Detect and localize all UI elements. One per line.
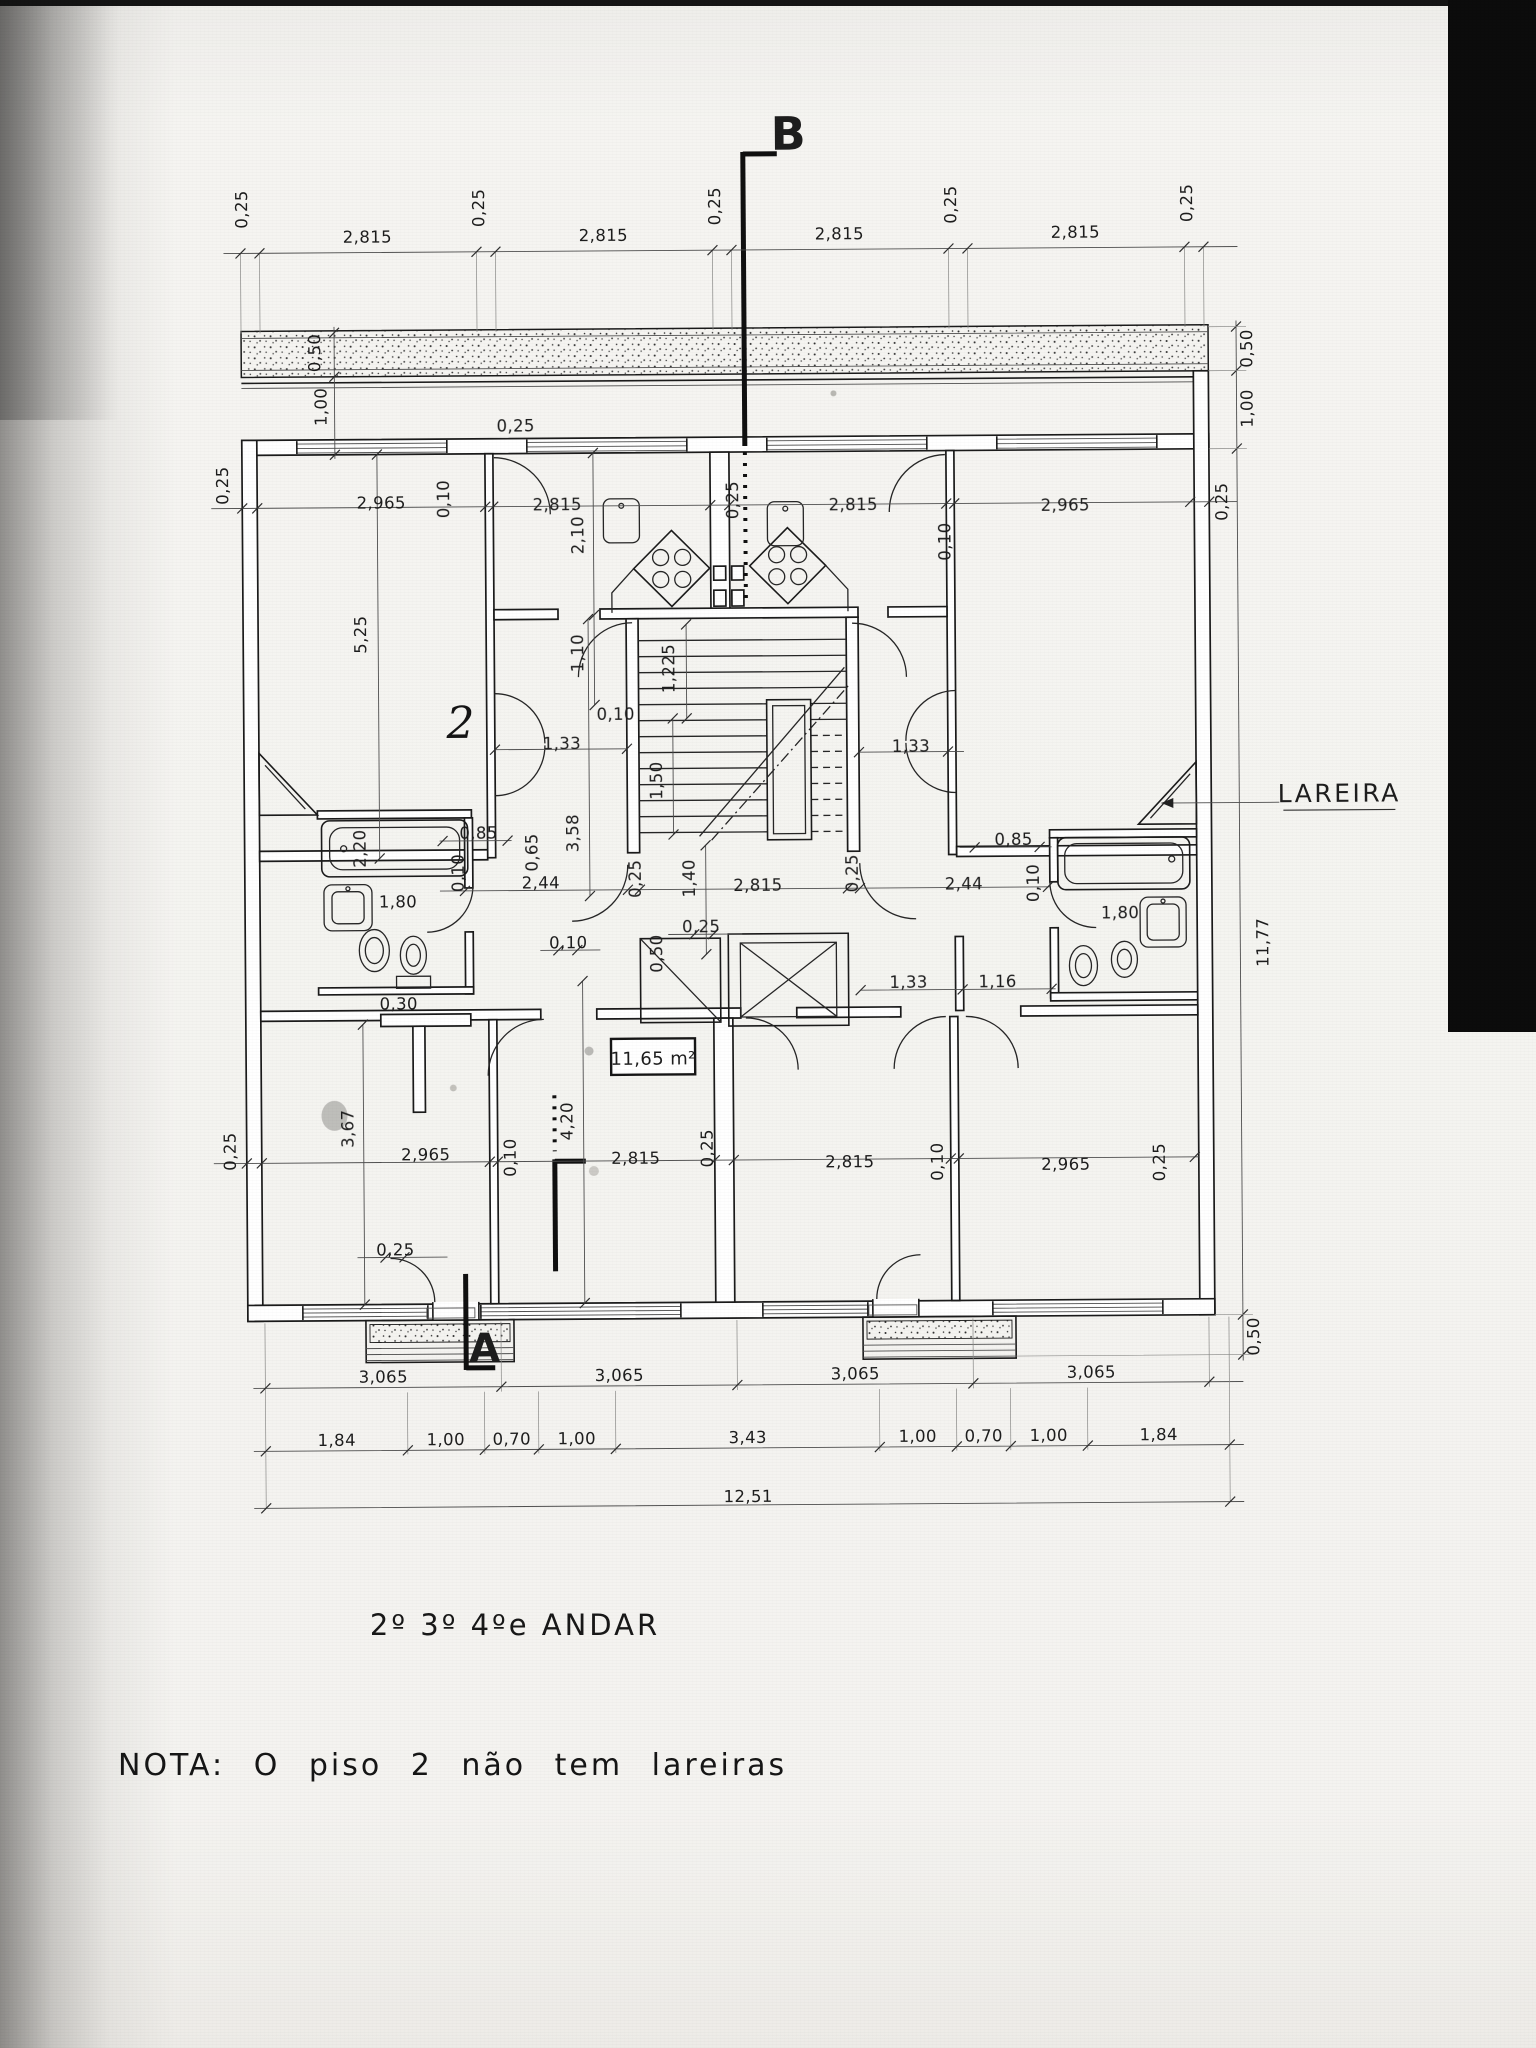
dimension-label: 0,25 (705, 187, 724, 225)
dimension-label: 1,16 (978, 972, 1016, 991)
dimension-label: 0,25 (941, 185, 960, 223)
floorplan-drawing: 0,252,8150,252,8150,252,8150,252,8150,25… (0, 0, 1536, 2048)
dimension-label: 0,50 (1237, 329, 1256, 367)
dimension-label: 2,815 (733, 876, 782, 895)
drawing-title: 2º 3º 4ºe ANDAR (330, 1608, 700, 1642)
dimension-label: 2,815 (343, 227, 392, 246)
section-marker-b: B (770, 107, 806, 161)
dimension-label: 0,85 (459, 824, 497, 843)
dimension-label: 0,10 (449, 854, 468, 892)
dimension-label: 0,25 (213, 466, 232, 504)
scanned-floorplan-page: { "page": { "paper_color": "#f4f3f0", "i… (0, 0, 1536, 2048)
dimension-label: 3,065 (1067, 1362, 1116, 1381)
dimension-label: 2,815 (829, 495, 878, 514)
dimension-label: 2,10 (568, 516, 587, 554)
dimension-label: 2,44 (945, 874, 983, 893)
dimension-label: 2,965 (401, 1145, 450, 1164)
dimension-label: 2,44 (522, 873, 560, 892)
dimension-label: 0,10 (596, 705, 634, 724)
dimension-label: 0,25 (626, 859, 645, 897)
dimension-label: 0,50 (647, 934, 666, 972)
dimension-label: 0,10 (928, 1142, 947, 1180)
dimension-label: 0,25 (1212, 482, 1231, 520)
dimension-label: 2,815 (815, 224, 864, 243)
dimension-label: 0,10 (1024, 864, 1043, 902)
dimension-label: 1,80 (1101, 903, 1139, 922)
dimension-label: 1,10 (568, 634, 587, 672)
dimension-label: 0,25 (698, 1129, 717, 1167)
dimension-label: 0,25 (1177, 184, 1196, 222)
dimension-label: 1,00 (1237, 389, 1256, 427)
section-line-b (743, 152, 780, 606)
top-terrace-band (241, 325, 1208, 389)
dimension-label: 0,50 (1244, 1317, 1263, 1355)
dimension-label: 0,85 (994, 830, 1032, 849)
drawing-note: NOTA: O piso 2 não tem lareiras (118, 1748, 787, 1783)
dimension-label: 3,065 (595, 1366, 644, 1385)
dimension-label: 1,225 (659, 644, 678, 693)
handwritten-mark: 2 (445, 698, 475, 749)
dimension-label: 1,00 (558, 1429, 596, 1448)
dimension-lines (207, 241, 1254, 1513)
dimension-label: 2,965 (1041, 1155, 1090, 1174)
dimension-label: 5,25 (351, 615, 370, 653)
dimension-label: 4,20 (557, 1102, 576, 1140)
elevator-shaft (728, 933, 849, 1026)
dimension-label: 2,815 (1051, 222, 1100, 241)
dimension-label: 0,25 (723, 481, 742, 519)
dimension-label: 3,58 (563, 814, 582, 852)
dimension-label: 0,25 (469, 189, 488, 227)
dimension-label: 1,84 (1140, 1425, 1178, 1444)
dimension-label: 3,065 (359, 1367, 408, 1386)
dimension-label: 1,50 (647, 761, 666, 799)
dimension-label: 1,80 (379, 892, 417, 911)
dimension-label: 0,25 (376, 1240, 414, 1259)
dimension-label: 0,65 (523, 833, 542, 871)
dimension-label: 2,20 (350, 829, 369, 867)
dimension-label: 0,10 (549, 933, 587, 952)
dimension-label: 1,33 (892, 737, 930, 756)
dimension-label: 11,77 (1253, 918, 1272, 967)
dimension-label: 0,25 (843, 854, 862, 892)
dimension-label: 1,33 (889, 973, 927, 992)
dimension-label: 0,50 (305, 334, 324, 372)
dimension-label: 0,25 (1150, 1143, 1169, 1181)
dimension-label: 0,10 (434, 480, 453, 518)
dimension-label: 2,815 (611, 1149, 660, 1168)
dimension-label: 0,10 (501, 1138, 520, 1176)
dimension-label: 3,065 (831, 1364, 880, 1383)
dimension-label: 3,67 (338, 1110, 357, 1148)
dimension-label: 12,51 (723, 1487, 772, 1506)
dimension-label: 0,25 (496, 416, 534, 435)
dimension-label: 2,965 (1041, 496, 1090, 515)
section-marker-a: A (469, 1326, 501, 1372)
dimension-label: 0,70 (965, 1426, 1003, 1445)
dimension-label: 0,30 (379, 994, 417, 1013)
area-label: 11,65 m² (610, 1048, 695, 1070)
dimension-label: 1,00 (1030, 1426, 1068, 1445)
dimension-label: 0,10 (935, 522, 954, 560)
bidet (396, 931, 1137, 988)
dimension-label: 1,33 (543, 734, 581, 753)
fireplace-label: LAREIRA (1278, 778, 1401, 808)
dimension-label: 0,25 (232, 190, 251, 228)
dimension-label: 0,70 (493, 1429, 531, 1448)
dimension-label: 1,84 (318, 1431, 356, 1450)
dimension-label: 1,40 (680, 859, 699, 897)
dimension-label: 2,965 (357, 493, 406, 512)
dimension-label: 2,815 (825, 1152, 874, 1171)
dimension-label: 1,00 (427, 1430, 465, 1449)
dimension-label: 3,43 (729, 1428, 767, 1447)
dimension-label: 0,25 (682, 917, 720, 936)
dimension-label: 0,25 (221, 1132, 240, 1170)
dimension-label: 2,815 (533, 495, 582, 514)
dimension-label: 1,00 (311, 388, 330, 426)
dimension-label: 1,00 (899, 1427, 937, 1446)
dimension-label: 2,815 (579, 226, 628, 245)
dimension-labels: 0,252,8150,252,8150,252,8150,252,8150,25… (210, 102, 1405, 1509)
